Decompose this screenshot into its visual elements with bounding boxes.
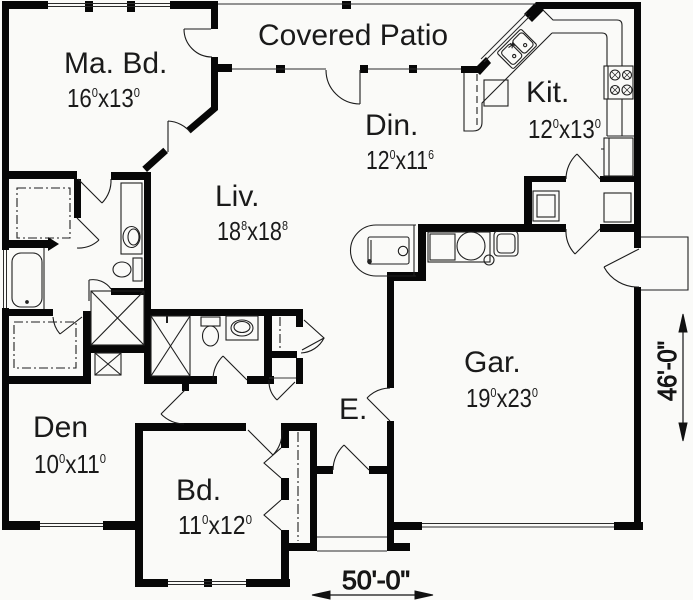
svg-text:100x110: 100x110 <box>34 449 106 479</box>
svg-text:Kit.: Kit. <box>526 76 569 109</box>
svg-text:110x120: 110x120 <box>178 510 252 540</box>
svg-text:120x116: 120x116 <box>366 145 434 175</box>
svg-text:160x130: 160x130 <box>67 83 140 113</box>
svg-text:Liv.: Liv. <box>215 180 259 213</box>
svg-text:Den: Den <box>33 411 88 444</box>
svg-text:Gar.: Gar. <box>464 346 521 379</box>
svg-text:50'-0": 50'-0" <box>342 565 410 595</box>
svg-text:Bd.: Bd. <box>176 474 221 507</box>
svg-text:Ma. Bd.: Ma. Bd. <box>64 47 167 80</box>
svg-text:Din.: Din. <box>365 109 418 142</box>
svg-text:46'-0": 46'-0" <box>652 341 682 401</box>
svg-text:E.: E. <box>339 393 367 426</box>
svg-text:188x188: 188x188 <box>217 216 288 246</box>
svg-text:190x230: 190x230 <box>466 383 538 413</box>
svg-text:120x130: 120x130 <box>528 114 601 144</box>
svg-text:Covered Patio: Covered Patio <box>258 19 448 52</box>
